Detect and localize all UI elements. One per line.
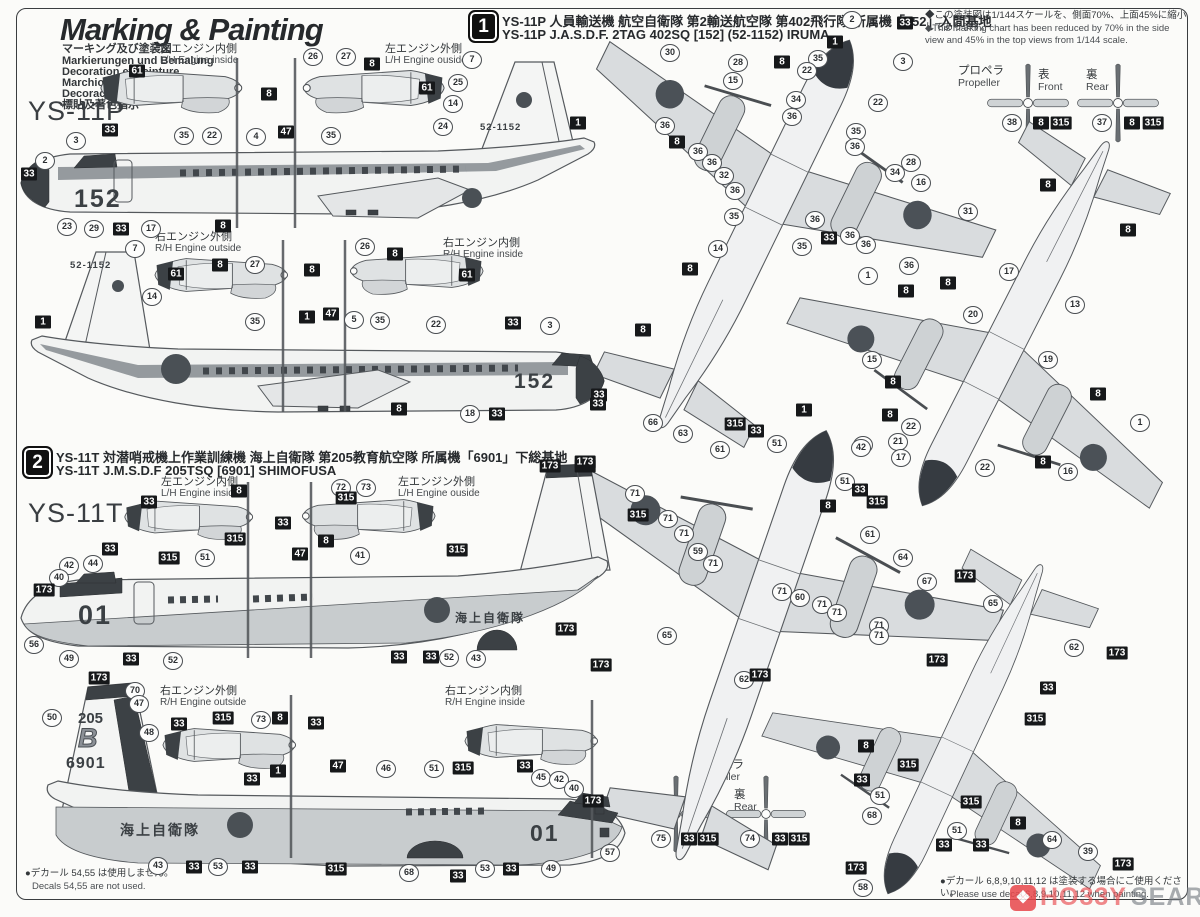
decal-callout-3: 3 bbox=[893, 53, 913, 71]
decal-callout-67: 67 bbox=[917, 573, 937, 591]
paint-callout-173: 173 bbox=[575, 456, 596, 469]
paint-callout-33: 33 bbox=[423, 651, 439, 664]
decal-callout-13: 13 bbox=[1065, 296, 1085, 314]
decal-callout-51: 51 bbox=[424, 760, 444, 778]
decal-callout-71: 71 bbox=[869, 627, 889, 645]
decal-callout-51: 51 bbox=[947, 822, 967, 840]
decal-callout-3: 3 bbox=[66, 132, 86, 150]
paint-callout-33: 33 bbox=[275, 517, 291, 530]
paint-callout-47: 47 bbox=[330, 760, 346, 773]
paint-callout-8: 8 bbox=[682, 263, 698, 276]
paint-callout-315: 315 bbox=[1143, 117, 1164, 130]
decal-callout-71: 71 bbox=[625, 485, 645, 503]
decal-callout-75: 75 bbox=[651, 830, 671, 848]
paint-callout-173: 173 bbox=[34, 584, 55, 597]
decal-callout-14: 14 bbox=[708, 240, 728, 258]
paint-callout-173: 173 bbox=[89, 672, 110, 685]
paint-callout-8: 8 bbox=[391, 403, 407, 416]
decal-callout-43: 43 bbox=[148, 857, 168, 875]
decal-callout-46: 46 bbox=[376, 760, 396, 778]
paint-callout-173: 173 bbox=[846, 862, 867, 875]
hobby-search-logo-icon: ❖ bbox=[1010, 885, 1036, 911]
paint-callout-315: 315 bbox=[447, 544, 468, 557]
paint-callout-173: 173 bbox=[583, 795, 604, 808]
decal-callout-2: 2 bbox=[35, 152, 55, 170]
decal-callout-7: 7 bbox=[462, 51, 482, 69]
paint-callout-1: 1 bbox=[570, 117, 586, 130]
decal-callout-20: 20 bbox=[963, 306, 983, 324]
decal-callout-57: 57 bbox=[600, 844, 620, 862]
decal-callout-35: 35 bbox=[321, 127, 341, 145]
decal-callout-19: 19 bbox=[1038, 351, 1058, 369]
paint-callout-1: 1 bbox=[270, 765, 286, 778]
decal-callout-22: 22 bbox=[901, 418, 921, 436]
decal-callout-28: 28 bbox=[728, 54, 748, 72]
decal-callout-25: 25 bbox=[448, 74, 468, 92]
paint-callout-33: 33 bbox=[244, 773, 260, 786]
paint-callout-8: 8 bbox=[1124, 117, 1140, 130]
paint-callout-8: 8 bbox=[1040, 179, 1056, 192]
decal-callout-26: 26 bbox=[355, 238, 375, 256]
decal-callout-17: 17 bbox=[891, 449, 911, 467]
decal-callout-34: 34 bbox=[786, 91, 806, 109]
paint-callout-8: 8 bbox=[820, 500, 836, 513]
decal-callout-14: 14 bbox=[443, 95, 463, 113]
decal-callout-18: 18 bbox=[460, 405, 480, 423]
decal-callout-71: 71 bbox=[674, 525, 694, 543]
paint-callout-8: 8 bbox=[898, 285, 914, 298]
decal-callout-17: 17 bbox=[141, 220, 161, 238]
paint-callout-8: 8 bbox=[1033, 117, 1049, 130]
decal-callout-5: 5 bbox=[344, 311, 364, 329]
decal-callout-74: 74 bbox=[740, 830, 760, 848]
hobby-search-watermark: ❖ HO33Y SEARCH bbox=[1010, 883, 1200, 912]
decal-callout-52: 52 bbox=[163, 652, 183, 670]
paint-callout-8: 8 bbox=[774, 56, 790, 69]
paint-callout-315: 315 bbox=[159, 552, 180, 565]
decal-callout-40: 40 bbox=[564, 780, 584, 798]
decal-callout-61: 61 bbox=[710, 441, 730, 459]
decal-callout-1: 1 bbox=[1130, 414, 1150, 432]
paint-callout-315: 315 bbox=[898, 759, 919, 772]
decal-callout-44: 44 bbox=[83, 555, 103, 573]
paint-callout-8: 8 bbox=[364, 58, 380, 71]
paint-callout-47: 47 bbox=[292, 548, 308, 561]
paint-callout-8: 8 bbox=[885, 376, 901, 389]
decal-callout-22: 22 bbox=[797, 62, 817, 80]
paint-callout-33: 33 bbox=[171, 718, 187, 731]
paint-callout-33: 33 bbox=[21, 168, 37, 181]
paint-callout-315: 315 bbox=[725, 418, 746, 431]
decal-callout-17: 17 bbox=[999, 263, 1019, 281]
paint-callout-33: 33 bbox=[102, 124, 118, 137]
paint-callout-33: 33 bbox=[308, 717, 324, 730]
paint-callout-315: 315 bbox=[789, 833, 810, 846]
paint-callout-33: 33 bbox=[854, 774, 870, 787]
decal-callout-22: 22 bbox=[975, 459, 995, 477]
paint-callout-8: 8 bbox=[261, 88, 277, 101]
paint-callout-173: 173 bbox=[1113, 858, 1134, 871]
decal-callout-35: 35 bbox=[245, 313, 265, 331]
decal-callout-16: 16 bbox=[1058, 463, 1078, 481]
paint-callout-33: 33 bbox=[113, 223, 129, 236]
decal-callout-50: 50 bbox=[42, 709, 62, 727]
decal-callout-35: 35 bbox=[724, 208, 744, 226]
decal-callout-65: 65 bbox=[657, 627, 677, 645]
paint-callout-33: 33 bbox=[141, 496, 157, 509]
paint-callout-47: 47 bbox=[278, 126, 294, 139]
decal-callout-45: 45 bbox=[531, 769, 551, 787]
decal-callout-36: 36 bbox=[845, 138, 865, 156]
paint-callout-173: 173 bbox=[750, 669, 771, 682]
paint-callout-33: 33 bbox=[772, 833, 788, 846]
decal-callout-23: 23 bbox=[57, 218, 77, 236]
paint-callout-8: 8 bbox=[387, 248, 403, 261]
paint-callout-33: 33 bbox=[897, 17, 913, 30]
decal-callout-48: 48 bbox=[139, 724, 159, 742]
paint-callout-173: 173 bbox=[556, 623, 577, 636]
decal-callout-62: 62 bbox=[1064, 639, 1084, 657]
paint-callout-33: 33 bbox=[186, 861, 202, 874]
paint-callout-33: 33 bbox=[748, 425, 764, 438]
paint-callout-1: 1 bbox=[35, 316, 51, 329]
decal-callout-65: 65 bbox=[983, 595, 1003, 613]
decal-callout-2: 2 bbox=[842, 11, 862, 29]
paint-callout-315: 315 bbox=[213, 712, 234, 725]
decal-callout-36: 36 bbox=[655, 117, 675, 135]
decal-callout-64: 64 bbox=[893, 549, 913, 567]
decal-callout-58: 58 bbox=[853, 879, 873, 897]
decal-callout-35: 35 bbox=[370, 312, 390, 330]
decal-callout-38: 38 bbox=[1002, 114, 1022, 132]
paint-callout-8: 8 bbox=[318, 535, 334, 548]
decal-callout-35: 35 bbox=[174, 127, 194, 145]
paint-callout-173: 173 bbox=[927, 654, 948, 667]
decal-callout-15: 15 bbox=[862, 351, 882, 369]
paint-callout-33: 33 bbox=[102, 543, 118, 556]
decal-callout-22: 22 bbox=[868, 94, 888, 112]
decal-callout-52: 52 bbox=[439, 649, 459, 667]
paint-callout-8: 8 bbox=[1035, 456, 1051, 469]
instruction-sheet: Marking & Painting マーキング及び塗装図 Markierung… bbox=[0, 0, 1200, 917]
decal-callout-36: 36 bbox=[725, 182, 745, 200]
decal-callout-37: 37 bbox=[1092, 114, 1112, 132]
paint-callout-8: 8 bbox=[231, 485, 247, 498]
decal-callout-63: 63 bbox=[673, 425, 693, 443]
decal-callout-36: 36 bbox=[856, 236, 876, 254]
decal-callout-41: 41 bbox=[350, 547, 370, 565]
paint-callout-33: 33 bbox=[852, 484, 868, 497]
paint-callout-8: 8 bbox=[669, 136, 685, 149]
decal-callout-51: 51 bbox=[195, 549, 215, 567]
decal-callout-73: 73 bbox=[251, 711, 271, 729]
decal-callout-31: 31 bbox=[958, 203, 978, 221]
decal-callout-35: 35 bbox=[792, 238, 812, 256]
paint-callout-315: 315 bbox=[225, 533, 246, 546]
paint-callout-33: 33 bbox=[489, 408, 505, 421]
decal-callout-51: 51 bbox=[767, 435, 787, 453]
decal-callout-71: 71 bbox=[658, 510, 678, 528]
paint-callout-8: 8 bbox=[940, 277, 956, 290]
decal-callout-34: 34 bbox=[885, 164, 905, 182]
paint-callout-33: 33 bbox=[503, 863, 519, 876]
paint-callout-315: 315 bbox=[326, 863, 347, 876]
paint-callout-33: 33 bbox=[681, 833, 697, 846]
decal-callout-1: 1 bbox=[858, 267, 878, 285]
paint-callout-8: 8 bbox=[858, 740, 874, 753]
paint-callout-315: 315 bbox=[1025, 713, 1046, 726]
paint-callout-33: 33 bbox=[450, 870, 466, 883]
decal-callout-14: 14 bbox=[142, 288, 162, 306]
paint-callout-173: 173 bbox=[591, 659, 612, 672]
decal-callout-71: 71 bbox=[772, 583, 792, 601]
decal-callout-47: 47 bbox=[129, 695, 149, 713]
decal-callout-49: 49 bbox=[59, 650, 79, 668]
paint-callout-33: 33 bbox=[936, 839, 952, 852]
paint-callout-33: 33 bbox=[505, 317, 521, 330]
paint-callout-33: 33 bbox=[821, 232, 837, 245]
decal-callout-7: 7 bbox=[125, 240, 145, 258]
decal-callout-15: 15 bbox=[723, 72, 743, 90]
paint-callout-8: 8 bbox=[1090, 388, 1106, 401]
decal-callout-16: 16 bbox=[911, 174, 931, 192]
paint-callout-33: 33 bbox=[590, 398, 606, 411]
decal-callout-66: 66 bbox=[643, 414, 663, 432]
decal-callout-39: 39 bbox=[1078, 843, 1098, 861]
paint-callout-173: 173 bbox=[540, 460, 561, 473]
decal-callout-71: 71 bbox=[827, 604, 847, 622]
decal-callout-26: 26 bbox=[303, 48, 323, 66]
decal-callout-30: 30 bbox=[660, 44, 680, 62]
paint-callout-33: 33 bbox=[391, 651, 407, 664]
paint-callout-315: 315 bbox=[1051, 117, 1072, 130]
paint-callout-61: 61 bbox=[419, 82, 435, 95]
paint-callout-8: 8 bbox=[1010, 817, 1026, 830]
decal-callout-53: 53 bbox=[208, 858, 228, 876]
paint-callout-8: 8 bbox=[212, 259, 228, 272]
paint-callout-8: 8 bbox=[882, 409, 898, 422]
decal-callout-36: 36 bbox=[782, 108, 802, 126]
decal-callout-53: 53 bbox=[475, 860, 495, 878]
paint-callout-315: 315 bbox=[336, 492, 357, 505]
paint-callout-61: 61 bbox=[168, 268, 184, 281]
paint-callout-8: 8 bbox=[1120, 224, 1136, 237]
decal-callout-29: 29 bbox=[84, 220, 104, 238]
paint-callout-8: 8 bbox=[272, 712, 288, 725]
decal-callout-60: 60 bbox=[790, 589, 810, 607]
paint-callout-173: 173 bbox=[1107, 647, 1128, 660]
decal-callout-24: 24 bbox=[433, 118, 453, 136]
paint-callout-8: 8 bbox=[304, 264, 320, 277]
decal-callout-49: 49 bbox=[541, 860, 561, 878]
paint-callout-8: 8 bbox=[635, 324, 651, 337]
decal-callout-51: 51 bbox=[870, 787, 890, 805]
paint-callout-33: 33 bbox=[123, 653, 139, 666]
decal-callout-73: 73 bbox=[356, 479, 376, 497]
paint-callout-315: 315 bbox=[628, 509, 649, 522]
decal-callout-27: 27 bbox=[245, 256, 265, 274]
decal-callout-36: 36 bbox=[899, 257, 919, 275]
decal-callout-68: 68 bbox=[862, 807, 882, 825]
paint-callout-1: 1 bbox=[827, 36, 843, 49]
paint-callout-61: 61 bbox=[129, 65, 145, 78]
decal-callout-22: 22 bbox=[202, 127, 222, 145]
paint-callout-61: 61 bbox=[459, 269, 475, 282]
paint-callout-315: 315 bbox=[698, 833, 719, 846]
decal-callout-68: 68 bbox=[399, 864, 419, 882]
decal-callout-43: 43 bbox=[466, 650, 486, 668]
paint-callout-1: 1 bbox=[796, 404, 812, 417]
decal-callout-27: 27 bbox=[336, 48, 356, 66]
decal-callout-22: 22 bbox=[426, 316, 446, 334]
paint-callout-173: 173 bbox=[955, 570, 976, 583]
paint-callout-8: 8 bbox=[215, 220, 231, 233]
decal-callout-56: 56 bbox=[24, 636, 44, 654]
decal-callout-71: 71 bbox=[703, 555, 723, 573]
paint-callout-47: 47 bbox=[323, 308, 339, 321]
decal-callout-42: 42 bbox=[851, 439, 871, 457]
paint-callout-315: 315 bbox=[867, 496, 888, 509]
decal-callout-4: 4 bbox=[246, 128, 266, 146]
paint-callout-1: 1 bbox=[299, 311, 315, 324]
decal-callout-3: 3 bbox=[540, 317, 560, 335]
paint-callout-33: 33 bbox=[973, 839, 989, 852]
paint-callout-315: 315 bbox=[961, 796, 982, 809]
decal-callout-64: 64 bbox=[1042, 831, 1062, 849]
decal-callout-61: 61 bbox=[860, 526, 880, 544]
paint-callout-33: 33 bbox=[242, 861, 258, 874]
paint-callout-33: 33 bbox=[1040, 682, 1056, 695]
paint-callout-315: 315 bbox=[453, 762, 474, 775]
decal-callout-36: 36 bbox=[805, 211, 825, 229]
paint-callout-33: 33 bbox=[517, 760, 533, 773]
